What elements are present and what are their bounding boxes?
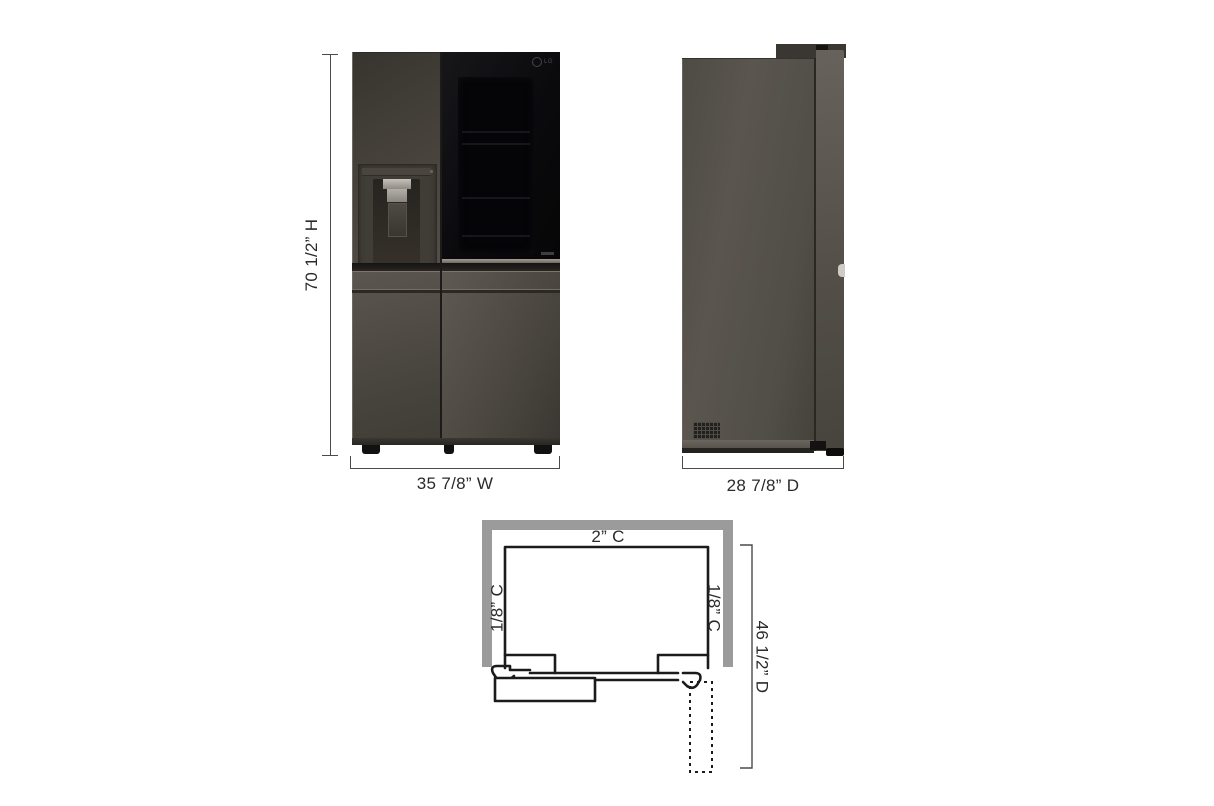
right-hinge-pivot [683, 673, 700, 688]
lower-left-door [352, 272, 440, 445]
product-dimensions-diagram: 70 1/2” H [0, 0, 1214, 806]
side-foot [826, 448, 844, 456]
lg-logo-text: LG [544, 59, 553, 65]
depth-dimension-line [682, 468, 844, 469]
center-door-gap [440, 52, 442, 445]
lg-logo: LG [532, 57, 553, 67]
fridge-foot [444, 445, 454, 454]
top-clearance-view: 2” C 1/8” C 1/8” C 46 1/2” D [450, 505, 795, 805]
right-hinge-notch [658, 655, 708, 673]
door-split-band [352, 263, 560, 272]
vent-grille [693, 422, 720, 439]
side-cabinet [682, 58, 814, 453]
door-swing-dashed [690, 682, 712, 772]
fridge-foot [362, 445, 380, 454]
refrigerator-front-image: LG [352, 52, 560, 455]
open-left-door [495, 678, 595, 701]
left-clearance-label: 1/8” C [488, 584, 507, 632]
shelf-line [462, 143, 530, 145]
ice-water-dispenser [358, 164, 437, 274]
shelf-line [462, 131, 530, 133]
shelf-line [462, 197, 530, 199]
width-dimension-label: 35 7/8” W [417, 474, 493, 494]
rear-clearance-label: 2” C [591, 527, 624, 546]
shelf-line [462, 235, 530, 237]
instaview-glass-panel: LG [442, 52, 560, 263]
height-dimension-line [330, 54, 331, 456]
width-dimension-line [350, 468, 560, 469]
dispenser-indicator-dot [430, 170, 433, 173]
side-base [682, 448, 814, 453]
fridge-footprint-outline [505, 547, 708, 668]
lg-logo-icon [532, 57, 542, 67]
depth-dimension-label: 28 7/8” D [727, 476, 800, 496]
dispenser-chute [383, 179, 411, 189]
side-door-panel [816, 50, 844, 451]
dispenser-control-strip [362, 168, 431, 176]
open-depth-dimension-bracket [740, 545, 752, 768]
instaview-window [458, 77, 534, 254]
refrigerator-side-image [682, 42, 846, 457]
side-handle-notch [838, 264, 845, 277]
lower-right-door [442, 272, 560, 445]
dispenser-cavity [373, 179, 420, 263]
open-door-depth-label: 46 1/2” D [753, 621, 772, 694]
handle-groove [352, 290, 560, 293]
bottom-hinge [810, 441, 826, 450]
clearance-diagram-svg: 2” C 1/8” C 1/8” C 46 1/2” D [450, 505, 795, 805]
height-dimension-tick-bottom [322, 455, 338, 456]
side-bottom-trim [682, 440, 814, 448]
dispenser-paddle [388, 203, 407, 237]
base-shadow-band [352, 438, 560, 445]
right-clearance-label: 1/8” C [705, 584, 724, 632]
dispenser-nozzle [387, 189, 407, 202]
fridge-foot [534, 445, 552, 454]
height-dimension-label: 70 1/2” H [302, 219, 322, 292]
instaview-micro-label [541, 252, 554, 255]
